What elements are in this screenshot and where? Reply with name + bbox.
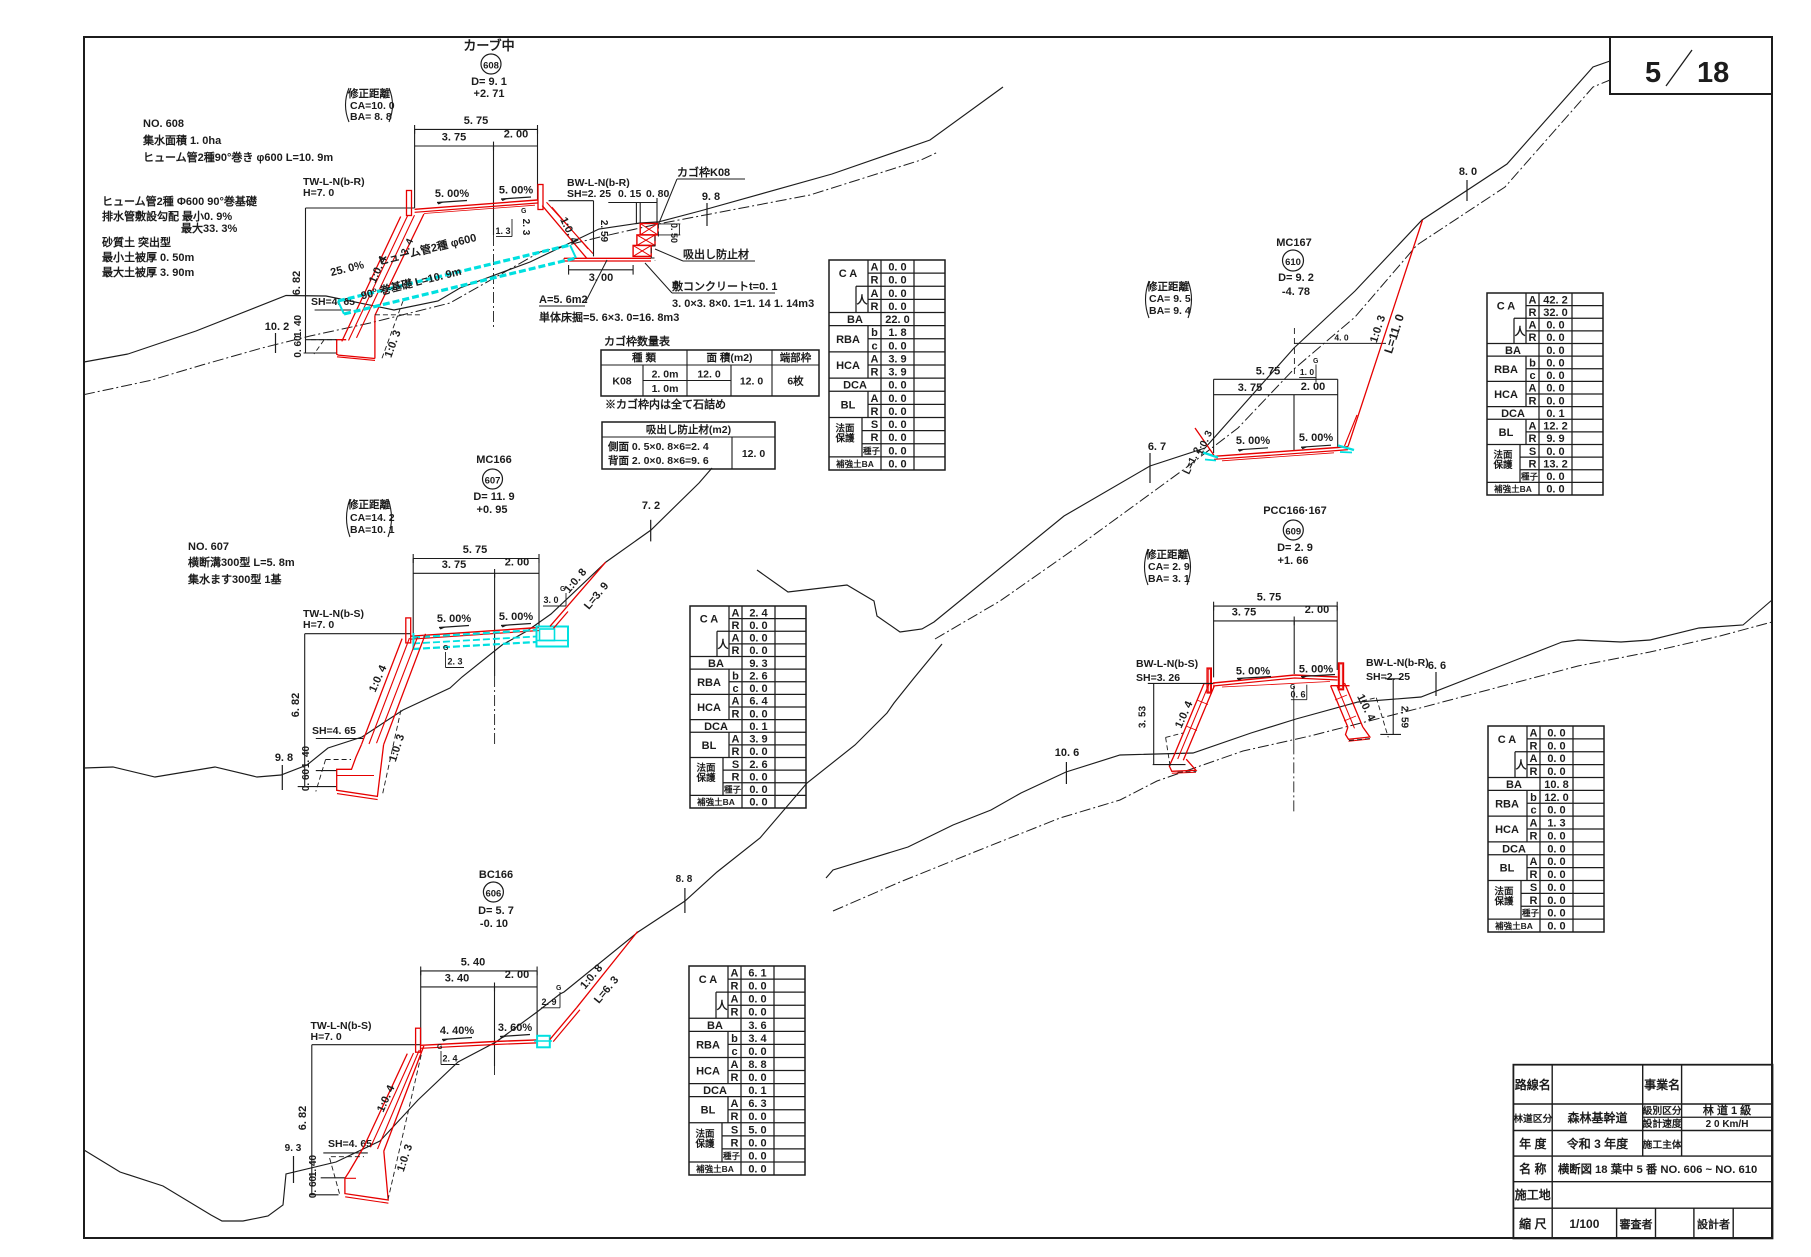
svg-text:最小土被厚 0. 50m: 最小土被厚 0. 50m bbox=[102, 250, 195, 264]
svg-text:MC167: MC167 bbox=[1276, 237, 1311, 249]
svg-text:1/100: 1/100 bbox=[1569, 1217, 1599, 1231]
svg-text:1. 0: 1. 0 bbox=[1300, 367, 1314, 377]
svg-text:R: R bbox=[732, 708, 740, 720]
svg-text:0. 0: 0. 0 bbox=[888, 445, 906, 457]
svg-text:G: G bbox=[521, 208, 527, 215]
svg-text:SH=2. 25: SH=2. 25 bbox=[567, 188, 611, 200]
svg-text:カゴ枠数量表: カゴ枠数量表 bbox=[604, 334, 671, 348]
svg-text:606: 606 bbox=[485, 889, 501, 900]
svg-text:審査者: 審査者 bbox=[1619, 1217, 1653, 1231]
svg-text:D= 5. 7: D= 5. 7 bbox=[478, 905, 514, 917]
svg-text:0. 0: 0. 0 bbox=[749, 797, 767, 809]
svg-text:9. 8: 9. 8 bbox=[702, 191, 720, 203]
svg-text:PCC166·167: PCC166·167 bbox=[1263, 505, 1327, 517]
svg-text:-4. 78: -4. 78 bbox=[1282, 286, 1310, 298]
svg-text:R: R bbox=[732, 645, 740, 657]
svg-text:D= 9. 2: D= 9. 2 bbox=[1278, 272, 1314, 284]
svg-text:R: R bbox=[732, 746, 740, 758]
svg-text:3. 4: 3. 4 bbox=[748, 1033, 767, 1045]
svg-text:DCA: DCA bbox=[703, 1085, 727, 1097]
svg-text:H=7. 0: H=7. 0 bbox=[311, 1031, 342, 1043]
svg-text:3. 9: 3. 9 bbox=[749, 734, 767, 746]
svg-text:事業名: 事業名 bbox=[1644, 1077, 1680, 1092]
svg-text:人: 人 bbox=[717, 998, 729, 1012]
svg-text:5. 75: 5. 75 bbox=[464, 115, 488, 127]
svg-text:0. 0: 0. 0 bbox=[748, 1150, 766, 1162]
svg-text:種子: 種子 bbox=[723, 1151, 741, 1161]
svg-text:1. 40: 1. 40 bbox=[293, 314, 304, 337]
svg-text:吸出し防止材: 吸出し防止材 bbox=[683, 247, 749, 261]
svg-text:人: 人 bbox=[718, 637, 730, 651]
svg-text:保護: 保護 bbox=[834, 433, 855, 445]
svg-text:0. 0: 0. 0 bbox=[888, 406, 906, 418]
svg-text:3. 00: 3. 00 bbox=[589, 272, 613, 284]
svg-text:林 道 1 級: 林 道 1 級 bbox=[1703, 1103, 1751, 1117]
svg-text:R: R bbox=[871, 432, 879, 444]
svg-text:5. 00%: 5. 00% bbox=[1299, 664, 1333, 676]
svg-text:※カゴ枠内は全て石詰め: ※カゴ枠内は全て石詰め bbox=[605, 397, 726, 411]
svg-text:横断溝300型 L=5. 8m: 横断溝300型 L=5. 8m bbox=[188, 555, 295, 569]
svg-text:R: R bbox=[1530, 830, 1538, 842]
svg-text:2. 00: 2. 00 bbox=[505, 557, 529, 569]
svg-text:森林基幹道: 森林基幹道 bbox=[1567, 1110, 1627, 1125]
svg-text:0. 0: 0. 0 bbox=[888, 288, 906, 300]
svg-text:0. 0: 0. 0 bbox=[1546, 383, 1564, 395]
svg-text:2. 00: 2. 00 bbox=[505, 969, 529, 981]
svg-text:CA= 9. 5: CA= 9. 5 bbox=[1149, 293, 1191, 305]
svg-text:6. 82: 6. 82 bbox=[291, 271, 303, 295]
svg-text:3. 0: 3. 0 bbox=[543, 595, 558, 605]
svg-text:S: S bbox=[731, 1124, 738, 1136]
svg-text:A: A bbox=[732, 734, 740, 746]
svg-text:10. 6: 10. 6 bbox=[1055, 747, 1079, 759]
svg-text:修正距離: 修正距離 bbox=[1146, 280, 1189, 293]
svg-text:6. 7: 6. 7 bbox=[1148, 441, 1166, 453]
svg-text:DCA: DCA bbox=[704, 721, 728, 733]
svg-text:RBA: RBA bbox=[836, 334, 860, 346]
svg-text:6. 1: 6. 1 bbox=[748, 968, 766, 980]
svg-text:0. 0: 0. 0 bbox=[1547, 882, 1565, 894]
svg-text:2. 00: 2. 00 bbox=[504, 129, 528, 141]
svg-text:カーブ中: カーブ中 bbox=[463, 38, 514, 53]
svg-text:BC166: BC166 bbox=[479, 869, 513, 881]
svg-text:5: 5 bbox=[1645, 57, 1661, 89]
svg-text:5. 00%: 5. 00% bbox=[499, 611, 533, 623]
svg-text:b: b bbox=[1529, 357, 1536, 369]
svg-text:c: c bbox=[1529, 370, 1535, 382]
svg-text:S: S bbox=[871, 419, 878, 431]
svg-text:0. 0: 0. 0 bbox=[1547, 766, 1565, 778]
svg-text:2 0 Km/H: 2 0 Km/H bbox=[1706, 1119, 1749, 1130]
svg-text:0. 0: 0. 0 bbox=[749, 633, 767, 645]
svg-text:0. 0: 0. 0 bbox=[748, 1137, 766, 1149]
svg-text:補強土BA: 補強土BA bbox=[835, 459, 874, 469]
svg-text:設計者: 設計者 bbox=[1697, 1217, 1730, 1231]
svg-text:0. 0: 0. 0 bbox=[748, 994, 766, 1006]
svg-text:607: 607 bbox=[485, 476, 501, 487]
svg-text:CA= 2. 9: CA= 2. 9 bbox=[1148, 561, 1190, 573]
svg-text:+2. 71: +2. 71 bbox=[474, 88, 505, 100]
svg-text:G: G bbox=[560, 586, 566, 593]
svg-text:610: 610 bbox=[1285, 257, 1301, 268]
svg-text:A: A bbox=[731, 1098, 739, 1110]
svg-text:R: R bbox=[1529, 433, 1537, 445]
svg-text:人: 人 bbox=[1516, 758, 1528, 772]
svg-text:R: R bbox=[871, 275, 879, 287]
svg-text:+0. 95: +0. 95 bbox=[477, 504, 508, 516]
svg-text:年 度: 年 度 bbox=[1519, 1136, 1547, 1151]
svg-text:BL: BL bbox=[1499, 427, 1514, 439]
svg-text:0. 0: 0. 0 bbox=[1547, 856, 1565, 868]
svg-text:5. 00%: 5. 00% bbox=[437, 613, 471, 625]
svg-text:0. 0: 0. 0 bbox=[888, 458, 906, 470]
svg-text:10. 8: 10. 8 bbox=[1544, 779, 1568, 791]
svg-text:2. 59: 2. 59 bbox=[598, 220, 609, 243]
svg-text:BA= 8. 8: BA= 8. 8 bbox=[350, 111, 392, 123]
svg-text:BL: BL bbox=[702, 740, 717, 752]
svg-text:6. 3: 6. 3 bbox=[748, 1098, 766, 1110]
svg-text:H=7. 0: H=7. 0 bbox=[303, 187, 334, 199]
svg-text:R: R bbox=[1529, 332, 1537, 344]
svg-text:5. 00%: 5. 00% bbox=[435, 188, 469, 200]
svg-text:2. 4: 2. 4 bbox=[442, 1054, 457, 1064]
svg-text:保護: 保護 bbox=[1493, 895, 1514, 907]
svg-text:BA= 9. 4: BA= 9. 4 bbox=[1149, 305, 1191, 317]
svg-text:0. 0: 0. 0 bbox=[888, 393, 906, 405]
svg-text:最大33. 3%: 最大33. 3% bbox=[181, 221, 237, 235]
svg-text:0. 0: 0. 0 bbox=[749, 784, 767, 796]
svg-text:SH=4. 65: SH=4. 65 bbox=[312, 725, 356, 737]
svg-text:4. 0: 4. 0 bbox=[1334, 333, 1348, 343]
svg-text:A: A bbox=[1529, 421, 1537, 433]
svg-text:補強土BA: 補強土BA bbox=[1494, 921, 1533, 931]
svg-text:2. 0m: 2. 0m bbox=[652, 369, 679, 381]
svg-text:C A: C A bbox=[1498, 734, 1517, 746]
svg-text:0. 0: 0. 0 bbox=[748, 1007, 766, 1019]
svg-text:0. 15: 0. 15 bbox=[618, 188, 642, 200]
svg-text:b: b bbox=[731, 1033, 738, 1045]
svg-text:砂質土 突出型: 砂質土 突出型 bbox=[102, 235, 171, 249]
svg-text:種子: 種子 bbox=[1521, 472, 1539, 482]
svg-text:5. 0: 5. 0 bbox=[748, 1124, 766, 1136]
svg-text:c: c bbox=[871, 340, 877, 352]
svg-text:1. 8: 1. 8 bbox=[888, 327, 906, 339]
svg-text:A: A bbox=[871, 262, 879, 274]
svg-text:NO. 608: NO. 608 bbox=[143, 118, 184, 130]
svg-text:3. 0×3. 8×0. 1=1. 14 1. 14m3: 3. 0×3. 8×0. 1=1. 14 1. 14m3 bbox=[672, 298, 814, 310]
svg-text:0. 0: 0. 0 bbox=[888, 275, 906, 287]
svg-text:8. 8: 8. 8 bbox=[676, 874, 693, 885]
svg-text:BL: BL bbox=[1500, 863, 1515, 875]
svg-text:6. 6: 6. 6 bbox=[1428, 660, 1446, 672]
svg-text:集水ます300型 1基: 集水ます300型 1基 bbox=[187, 572, 283, 586]
svg-text:R: R bbox=[1530, 766, 1538, 778]
svg-text:608: 608 bbox=[483, 61, 499, 72]
svg-text:BA: BA bbox=[1505, 345, 1521, 357]
svg-text:7. 2: 7. 2 bbox=[642, 500, 660, 512]
svg-text:R: R bbox=[731, 1137, 739, 1149]
svg-text:3. 40: 3. 40 bbox=[445, 973, 469, 985]
svg-text:0. 60: 0. 60 bbox=[293, 335, 304, 358]
svg-text:0. 0: 0. 0 bbox=[888, 432, 906, 444]
svg-text:c: c bbox=[732, 683, 738, 695]
svg-text:種 類: 種 類 bbox=[632, 351, 656, 364]
svg-text:2. 6: 2. 6 bbox=[749, 670, 767, 682]
svg-text:b: b bbox=[871, 327, 878, 339]
svg-text:0. 0: 0. 0 bbox=[1547, 830, 1565, 842]
svg-text:R: R bbox=[871, 367, 879, 379]
svg-text:6. 82: 6. 82 bbox=[297, 1106, 309, 1130]
svg-text:A: A bbox=[1530, 856, 1538, 868]
svg-text:HCA: HCA bbox=[1495, 824, 1519, 836]
svg-text:0. 0: 0. 0 bbox=[1546, 484, 1564, 496]
svg-text:5. 75: 5. 75 bbox=[1256, 366, 1280, 378]
svg-text:A: A bbox=[732, 633, 740, 645]
svg-text:BA: BA bbox=[1506, 779, 1522, 791]
svg-text:集水面積 1. 0ha: 集水面積 1. 0ha bbox=[142, 133, 222, 147]
svg-text:R: R bbox=[731, 1007, 739, 1019]
svg-text:A: A bbox=[871, 288, 879, 300]
svg-text:0. 0: 0. 0 bbox=[1546, 395, 1564, 407]
svg-text:3. 60%: 3. 60% bbox=[498, 1022, 532, 1034]
svg-text:R: R bbox=[1530, 869, 1538, 881]
svg-text:5. 40: 5. 40 bbox=[461, 957, 485, 969]
svg-text:R: R bbox=[1530, 740, 1538, 752]
svg-text:0. 0: 0. 0 bbox=[1547, 727, 1565, 739]
svg-text:0. 0: 0. 0 bbox=[1547, 869, 1565, 881]
svg-text:BL: BL bbox=[701, 1105, 716, 1117]
svg-text:RBA: RBA bbox=[1494, 364, 1518, 376]
svg-text:A: A bbox=[1529, 294, 1537, 306]
svg-text:吸出し防止材(m2): 吸出し防止材(m2) bbox=[646, 423, 731, 436]
svg-text:A: A bbox=[732, 607, 740, 619]
svg-text:R: R bbox=[871, 406, 879, 418]
svg-text:0. 0: 0. 0 bbox=[1546, 370, 1564, 382]
svg-text:9. 8: 9. 8 bbox=[275, 752, 293, 764]
svg-text:A: A bbox=[1530, 818, 1538, 830]
svg-text:9. 3: 9. 3 bbox=[285, 1143, 302, 1154]
svg-text:0. 80: 0. 80 bbox=[646, 188, 670, 200]
svg-text:22. 0: 22. 0 bbox=[885, 314, 909, 326]
svg-text:1. 40: 1. 40 bbox=[308, 1154, 319, 1177]
svg-text:12. 0: 12. 0 bbox=[740, 376, 764, 388]
svg-text:b: b bbox=[732, 670, 739, 682]
svg-text:1. 0m: 1. 0m bbox=[652, 383, 679, 395]
svg-text:DCA: DCA bbox=[1502, 843, 1526, 855]
svg-text:保護: 保護 bbox=[694, 1138, 715, 1150]
svg-text:RBA: RBA bbox=[1495, 798, 1519, 810]
svg-text:保護: 保護 bbox=[695, 772, 716, 784]
svg-text:A: A bbox=[731, 968, 739, 980]
svg-text:3. 75: 3. 75 bbox=[442, 132, 466, 144]
svg-text:10. 2: 10. 2 bbox=[265, 321, 289, 333]
svg-text:D= 9. 1: D= 9. 1 bbox=[471, 76, 507, 88]
svg-text:背面 2. 0×0. 8×6=9. 6: 背面 2. 0×0. 8×6=9. 6 bbox=[608, 454, 709, 467]
svg-text:R: R bbox=[731, 981, 739, 993]
svg-text:DCA: DCA bbox=[843, 380, 867, 392]
svg-text:BW-L-N(b-R): BW-L-N(b-R) bbox=[1366, 657, 1429, 669]
svg-text:9. 3: 9. 3 bbox=[749, 658, 767, 670]
svg-text:0. 6: 0. 6 bbox=[1290, 690, 1305, 700]
svg-text:BL: BL bbox=[841, 399, 856, 411]
svg-text:カゴ枠K08: カゴ枠K08 bbox=[677, 165, 730, 179]
svg-text:12. 2: 12. 2 bbox=[1543, 421, 1567, 433]
svg-text:C A: C A bbox=[699, 974, 718, 986]
svg-text:8. 8: 8. 8 bbox=[748, 1059, 766, 1071]
svg-text:BW-L-N(b-S): BW-L-N(b-S) bbox=[1136, 658, 1198, 670]
svg-text:0. 1: 0. 1 bbox=[1546, 408, 1564, 420]
svg-text:3. 53: 3. 53 bbox=[1138, 705, 1149, 728]
svg-text:+1. 66: +1. 66 bbox=[1278, 555, 1309, 567]
svg-text:R: R bbox=[732, 620, 740, 632]
svg-text:BA=10. 1: BA=10. 1 bbox=[350, 524, 395, 536]
svg-text:側面 0. 5×0. 8×6=2. 4: 側面 0. 5×0. 8×6=2. 4 bbox=[607, 440, 709, 453]
svg-text:D= 2. 9: D= 2. 9 bbox=[1277, 542, 1313, 554]
svg-text:2. 59: 2. 59 bbox=[1399, 706, 1410, 729]
svg-text:3. 75: 3. 75 bbox=[442, 559, 466, 571]
svg-text:ヒューム管2種 Φ600 90°巻基礎: ヒューム管2種 Φ600 90°巻基礎 bbox=[102, 194, 258, 208]
svg-text:0. 0: 0. 0 bbox=[1547, 895, 1565, 907]
svg-text:RBA: RBA bbox=[696, 1039, 720, 1051]
svg-text:A: A bbox=[1530, 753, 1538, 765]
svg-text:種子: 種子 bbox=[724, 785, 742, 795]
svg-text:12. 0: 12. 0 bbox=[742, 448, 766, 460]
svg-text:A: A bbox=[731, 1059, 739, 1071]
svg-text:0. 0: 0. 0 bbox=[1547, 908, 1565, 920]
svg-text:32. 0: 32. 0 bbox=[1543, 307, 1567, 319]
svg-text:S: S bbox=[1529, 446, 1536, 458]
svg-text:0. 0: 0. 0 bbox=[1547, 753, 1565, 765]
svg-text:A: A bbox=[732, 696, 740, 708]
svg-text:3. 9: 3. 9 bbox=[888, 353, 906, 365]
svg-text:8. 0: 8. 0 bbox=[1459, 166, 1477, 178]
svg-text:R: R bbox=[1530, 895, 1538, 907]
svg-text:2. 00: 2. 00 bbox=[1305, 604, 1329, 616]
svg-text:種子: 種子 bbox=[863, 446, 881, 456]
svg-text:5. 75: 5. 75 bbox=[1257, 592, 1281, 604]
svg-text:0. 1: 0. 1 bbox=[748, 1085, 766, 1097]
svg-text:R: R bbox=[1529, 458, 1537, 470]
svg-text:0. 50: 0. 50 bbox=[669, 223, 679, 243]
svg-text:級別区分: 級別区分 bbox=[1643, 1104, 1682, 1117]
svg-text:C A: C A bbox=[1497, 301, 1516, 313]
svg-text:6. 4: 6. 4 bbox=[749, 696, 768, 708]
svg-text:0. 0: 0. 0 bbox=[749, 746, 767, 758]
svg-text:0. 0: 0. 0 bbox=[749, 683, 767, 695]
svg-text:c: c bbox=[1530, 805, 1536, 817]
svg-text:HCA: HCA bbox=[836, 360, 860, 372]
svg-text:R: R bbox=[1529, 307, 1537, 319]
svg-text:18: 18 bbox=[1697, 57, 1729, 89]
svg-text:S: S bbox=[732, 759, 739, 771]
svg-text:5. 00%: 5. 00% bbox=[1236, 435, 1270, 447]
svg-text:5. 00%: 5. 00% bbox=[1299, 432, 1333, 444]
svg-text:609: 609 bbox=[1285, 527, 1301, 538]
svg-text:0. 0: 0. 0 bbox=[749, 708, 767, 720]
svg-text:縮 尺: 縮 尺 bbox=[1519, 1216, 1546, 1231]
svg-text:端部枠: 端部枠 bbox=[780, 351, 812, 364]
svg-text:DCA: DCA bbox=[1501, 408, 1525, 420]
svg-text:0. 0: 0. 0 bbox=[1546, 471, 1564, 483]
svg-text:HCA: HCA bbox=[1494, 389, 1518, 401]
svg-text:0. 0: 0. 0 bbox=[1547, 805, 1565, 817]
svg-text:2. 4: 2. 4 bbox=[749, 607, 768, 619]
svg-text:5. 00%: 5. 00% bbox=[1236, 666, 1270, 678]
svg-text:人: 人 bbox=[1515, 324, 1527, 338]
svg-text:2. 6: 2. 6 bbox=[749, 759, 767, 771]
svg-text:C A: C A bbox=[700, 614, 719, 626]
svg-text:SH=3. 26: SH=3. 26 bbox=[1136, 672, 1180, 684]
svg-text:2. 3: 2. 3 bbox=[447, 657, 462, 667]
svg-text:G: G bbox=[437, 1044, 443, 1051]
svg-text:保護: 保護 bbox=[1492, 459, 1513, 471]
svg-text:令和 3 年度: 令和 3 年度 bbox=[1566, 1136, 1629, 1151]
svg-text:3. 6: 3. 6 bbox=[748, 1020, 766, 1032]
svg-text:-0. 10: -0. 10 bbox=[480, 918, 508, 930]
svg-text:SH=2. 25: SH=2. 25 bbox=[1366, 671, 1410, 683]
svg-text:1. 3: 1. 3 bbox=[495, 226, 510, 236]
svg-text:13. 2: 13. 2 bbox=[1543, 458, 1567, 470]
svg-text:5. 75: 5. 75 bbox=[463, 544, 487, 556]
svg-text:補強土BA: 補強土BA bbox=[695, 1164, 734, 1174]
svg-text:R: R bbox=[871, 301, 879, 313]
svg-text:BA: BA bbox=[847, 314, 863, 326]
svg-text:0. 0: 0. 0 bbox=[748, 1163, 766, 1175]
svg-text:4. 40%: 4. 40% bbox=[440, 1025, 474, 1037]
svg-text:面 積(m2): 面 積(m2) bbox=[706, 351, 752, 364]
svg-text:RBA: RBA bbox=[697, 677, 721, 689]
svg-text:0. 1: 0. 1 bbox=[749, 721, 767, 733]
svg-text:名 称: 名 称 bbox=[1519, 1161, 1546, 1176]
svg-text:修正距離: 修正距離 bbox=[347, 498, 390, 511]
svg-text:0. 0: 0. 0 bbox=[888, 262, 906, 274]
svg-text:A: A bbox=[871, 353, 879, 365]
svg-text:最大土被厚 3. 90m: 最大土被厚 3. 90m bbox=[102, 265, 195, 279]
svg-text:A: A bbox=[871, 393, 879, 405]
svg-text:0. 0: 0. 0 bbox=[888, 419, 906, 431]
svg-text:G: G bbox=[443, 645, 449, 652]
svg-text:12. 0: 12. 0 bbox=[697, 369, 721, 381]
svg-text:BA: BA bbox=[708, 658, 724, 670]
svg-text:路線名: 路線名 bbox=[1515, 1077, 1551, 1092]
svg-text:0. 0: 0. 0 bbox=[1547, 921, 1565, 933]
svg-text:R: R bbox=[731, 1111, 739, 1123]
svg-text:R: R bbox=[731, 1072, 739, 1084]
svg-text:3. 75: 3. 75 bbox=[1238, 382, 1262, 394]
svg-text:0. 0: 0. 0 bbox=[1547, 740, 1565, 752]
svg-text:S: S bbox=[1530, 882, 1537, 894]
svg-text:設計速度: 設計速度 bbox=[1643, 1117, 1682, 1130]
svg-text:NO. 607: NO. 607 bbox=[188, 541, 229, 553]
svg-text:施工主体: 施工主体 bbox=[1643, 1138, 1682, 1151]
svg-text:敷コンクリートt=0. 1: 敷コンクリートt=0. 1 bbox=[672, 279, 777, 293]
svg-text:H=7. 0: H=7. 0 bbox=[303, 619, 334, 631]
svg-text:0. 0: 0. 0 bbox=[749, 771, 767, 783]
svg-text:b: b bbox=[1530, 792, 1537, 804]
svg-text:排水管敷設勾配 最小0. 9%: 排水管敷設勾配 最小0. 9% bbox=[102, 209, 232, 223]
svg-text:6. 82: 6. 82 bbox=[290, 693, 302, 717]
svg-text:12. 0: 12. 0 bbox=[1544, 792, 1568, 804]
svg-text:HCA: HCA bbox=[697, 702, 721, 714]
svg-text:人: 人 bbox=[857, 292, 869, 306]
svg-text:A: A bbox=[1529, 383, 1537, 395]
svg-text:R: R bbox=[1529, 395, 1537, 407]
svg-text:42. 2: 42. 2 bbox=[1543, 294, 1567, 306]
svg-text:A=5. 6m2: A=5. 6m2 bbox=[539, 294, 588, 306]
svg-text:3. 75: 3. 75 bbox=[1232, 607, 1256, 619]
svg-text:0. 0: 0. 0 bbox=[888, 301, 906, 313]
svg-text:6枚: 6枚 bbox=[787, 375, 804, 388]
